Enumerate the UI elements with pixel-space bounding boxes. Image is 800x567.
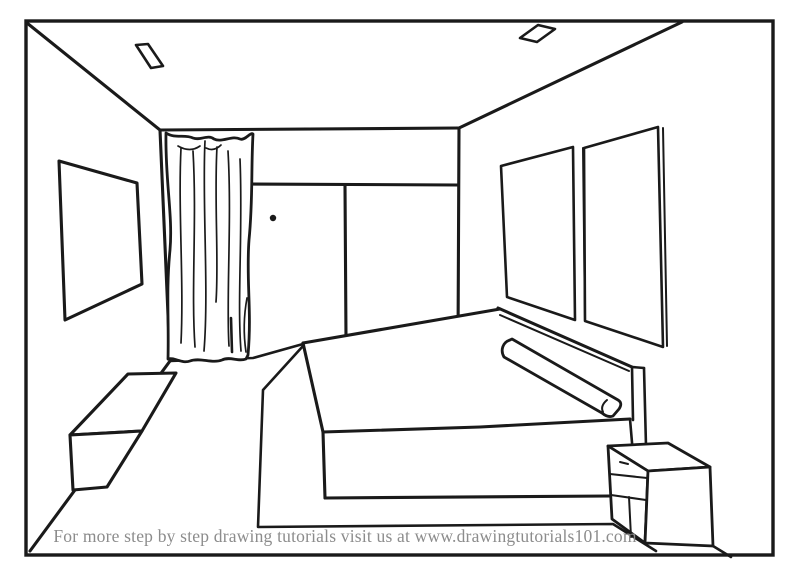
window-right-frame-edge bbox=[663, 128, 667, 346]
storage-bench bbox=[70, 373, 176, 490]
wall-corner-right bbox=[458, 128, 459, 346]
bedroom-line-drawing: For more step by step drawing tutorials … bbox=[0, 0, 800, 567]
bench-front-face bbox=[70, 431, 142, 490]
door-header bbox=[250, 184, 458, 185]
curtain-fold bbox=[193, 151, 195, 347]
curtain-fold-bold bbox=[231, 318, 232, 352]
window-right-pane bbox=[584, 127, 663, 347]
bed-base-left-edge bbox=[323, 432, 325, 498]
bed-base-bottom-edge bbox=[325, 496, 610, 498]
ceiling-edge-left bbox=[27, 23, 160, 130]
ceiling-light-2 bbox=[520, 25, 555, 42]
door-divider bbox=[345, 186, 346, 338]
double-window bbox=[501, 127, 667, 347]
curtain bbox=[166, 133, 253, 362]
ceiling-edge-right bbox=[459, 22, 682, 128]
back-wall-top-edge bbox=[160, 128, 459, 130]
ceiling-light-1 bbox=[136, 44, 163, 68]
sliding-door bbox=[250, 184, 458, 338]
drawing-page: For more step by step drawing tutorials … bbox=[0, 0, 800, 567]
curtain-fold bbox=[216, 147, 217, 302]
door-knob bbox=[270, 215, 276, 221]
nightstand-side-face bbox=[645, 467, 713, 546]
headboard-rail-step bbox=[632, 367, 644, 368]
window-left-pane bbox=[501, 147, 575, 320]
headboard-right-edge bbox=[632, 367, 633, 420]
watermark-text: For more step by step drawing tutorials … bbox=[53, 526, 637, 546]
picture-frame bbox=[59, 161, 142, 320]
bench-top-face bbox=[70, 373, 176, 435]
